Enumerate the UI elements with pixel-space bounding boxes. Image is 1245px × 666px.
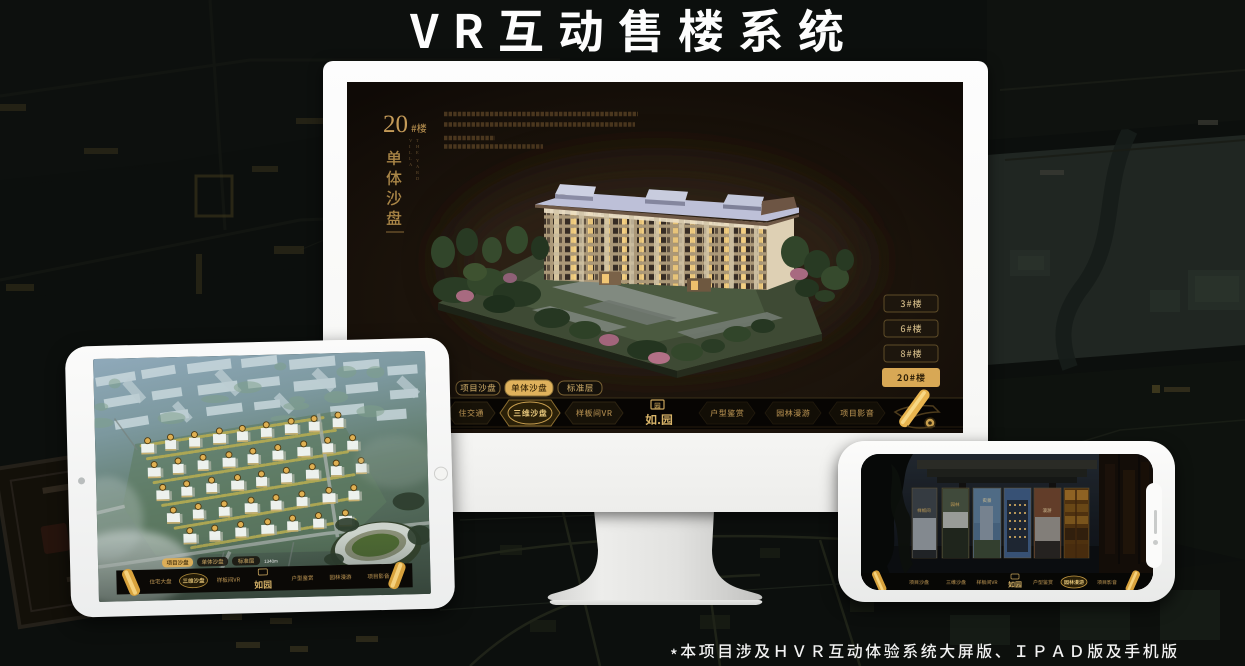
svg-text:T: T [416,138,419,143]
svg-text:L: L [409,156,412,161]
svg-text:L: L [409,150,412,155]
svg-text:20: 20 [383,111,408,138]
svg-text:R: R [416,170,419,175]
svg-text:E: E [416,150,419,155]
svg-text:1340m: 1340m [264,559,278,564]
